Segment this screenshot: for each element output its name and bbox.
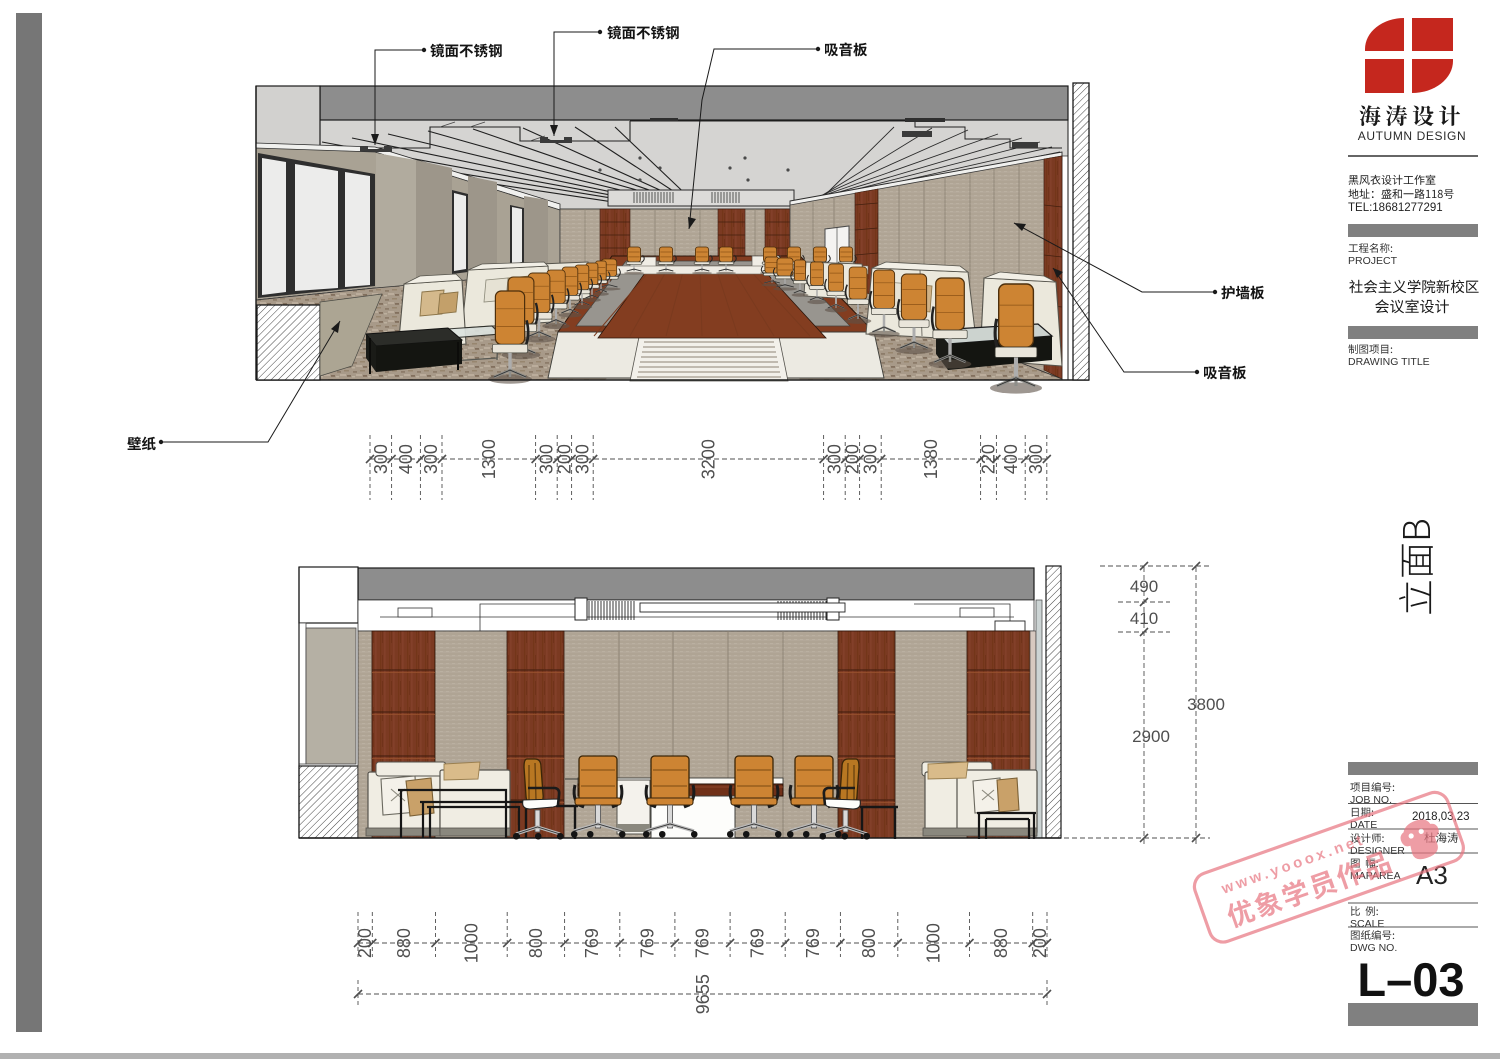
svg-text:200: 200: [554, 444, 574, 474]
svg-text:800: 800: [526, 928, 546, 958]
svg-text:1000: 1000: [924, 923, 944, 963]
svg-text:769: 769: [748, 928, 768, 958]
svg-text:JOB NO.: JOB NO.: [1350, 794, 1392, 806]
svg-text:769: 769: [582, 928, 602, 958]
svg-text:300: 300: [536, 444, 556, 474]
svg-text:769: 769: [693, 928, 713, 958]
svg-text:800: 800: [859, 928, 879, 958]
svg-text:1380: 1380: [921, 439, 941, 479]
svg-text:300: 300: [860, 444, 880, 474]
svg-text:300: 300: [371, 444, 391, 474]
svg-text:400: 400: [396, 444, 416, 474]
svg-text:SCALE: SCALE: [1350, 918, 1384, 930]
svg-text:300: 300: [1026, 444, 1046, 474]
svg-text:1300: 1300: [479, 439, 499, 479]
svg-text:3800: 3800: [1187, 695, 1225, 714]
svg-text:880: 880: [394, 928, 414, 958]
svg-text:220: 220: [979, 444, 999, 474]
svg-text:400: 400: [1001, 444, 1021, 474]
svg-text:300: 300: [824, 444, 844, 474]
svg-text:DRAWING TITLE: DRAWING TITLE: [1348, 356, 1430, 368]
svg-text:1000: 1000: [461, 923, 481, 963]
svg-text:300: 300: [421, 444, 441, 474]
svg-text:769: 769: [803, 928, 823, 958]
svg-text:200: 200: [1030, 928, 1050, 958]
svg-text:200: 200: [355, 928, 375, 958]
svg-text:880: 880: [991, 928, 1011, 958]
svg-text:AUTUMN DESIGN: AUTUMN DESIGN: [1358, 129, 1466, 143]
svg-text:410: 410: [1130, 609, 1158, 628]
svg-text:2900: 2900: [1132, 727, 1170, 746]
svg-text:9655: 9655: [693, 974, 713, 1014]
svg-text:L–03: L–03: [1357, 953, 1464, 1006]
svg-text:490: 490: [1130, 577, 1158, 596]
svg-text:TEL:18681277291: TEL:18681277291: [1348, 202, 1443, 214]
svg-text:769: 769: [637, 928, 657, 958]
svg-text:200: 200: [842, 444, 862, 474]
svg-text:PROJECT: PROJECT: [1348, 255, 1398, 267]
svg-text:3200: 3200: [698, 439, 718, 479]
svg-text:300: 300: [572, 444, 592, 474]
